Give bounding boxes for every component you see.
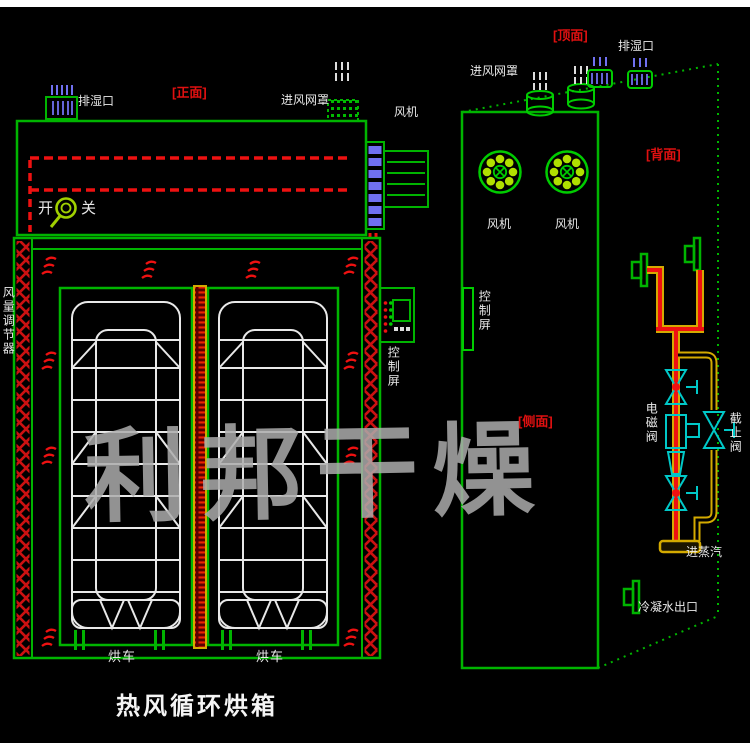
steam-inlet-label: 进蒸汽 [686, 546, 722, 559]
iso-control-panel-label: 控制屏 [477, 290, 490, 332]
front-face-label: [正面] [172, 86, 207, 100]
solenoid-valve-label: 电磁阀 [644, 402, 657, 444]
condensate-outlet-label: 冷凝水出口 [638, 601, 698, 614]
top-margin [0, 0, 750, 7]
side-face [462, 112, 598, 668]
moist-outlet-boxes [588, 57, 652, 88]
drawing-caption: 热风循环烘箱 [116, 694, 278, 720]
drawing-canvas: 排湿口 [正面] 进风网罩 风机 开 关 风量调节器 控制屏 烘车 烘车 热风循… [0, 0, 750, 750]
iso-side-face-label: [侧面] [518, 415, 553, 429]
cart-left-label: 烘车 [108, 650, 136, 664]
air-inlet-mesh-box [328, 100, 358, 121]
center-heater-strip [194, 286, 206, 648]
iso-moist-outlet-label: 排湿口 [618, 40, 654, 53]
trolley-wireframe [219, 302, 327, 628]
stop-valve-label: 截止阀 [728, 412, 741, 454]
air-damper-label: 风量调节器 [1, 286, 14, 356]
trolley-wireframe [72, 302, 180, 628]
front-view [14, 62, 428, 658]
magnifier-icon [51, 199, 76, 228]
front-moist-outlet-label: 排湿口 [78, 95, 114, 108]
control-panel-box [380, 288, 414, 342]
iso-view [462, 57, 734, 668]
iso-top-face-label: [顶面] [553, 29, 588, 43]
fan-belt-segments [369, 146, 382, 226]
cad-linework [0, 0, 750, 750]
vent-hatch-icon [336, 62, 348, 81]
iso-back-face-label: [背面] [646, 148, 681, 162]
iso-fan-left-label: 风机 [487, 218, 511, 231]
switch-on-label: 开 [38, 201, 54, 218]
iso-fan-right-label: 风机 [555, 218, 579, 231]
moist-outlet-hatch-icon [52, 85, 72, 95]
switch-off-label: 关 [81, 201, 97, 218]
fan-motor-box [384, 151, 428, 207]
cart-right-label: 烘车 [256, 650, 284, 664]
bottom-margin [0, 743, 750, 750]
front-air-inlet-label: 进风网罩 [281, 94, 329, 107]
iso-air-inlet-label: 进风网罩 [470, 65, 518, 78]
control-panel-edge [463, 288, 473, 350]
front-control-panel-label: 控制屏 [386, 346, 399, 388]
right-damper-column [365, 241, 378, 656]
front-fan-label: 风机 [394, 106, 418, 119]
left-damper-column [17, 241, 30, 656]
